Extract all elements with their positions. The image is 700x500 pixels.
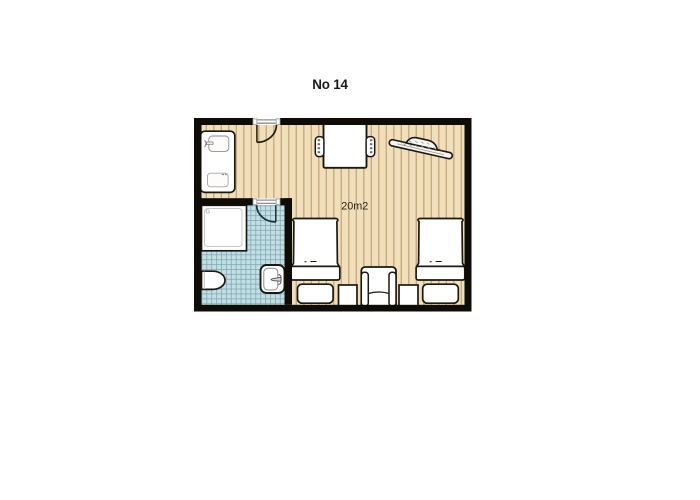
svg-text:20m2: 20m2 — [341, 200, 368, 212]
svg-text:No 14: No 14 — [312, 77, 348, 92]
